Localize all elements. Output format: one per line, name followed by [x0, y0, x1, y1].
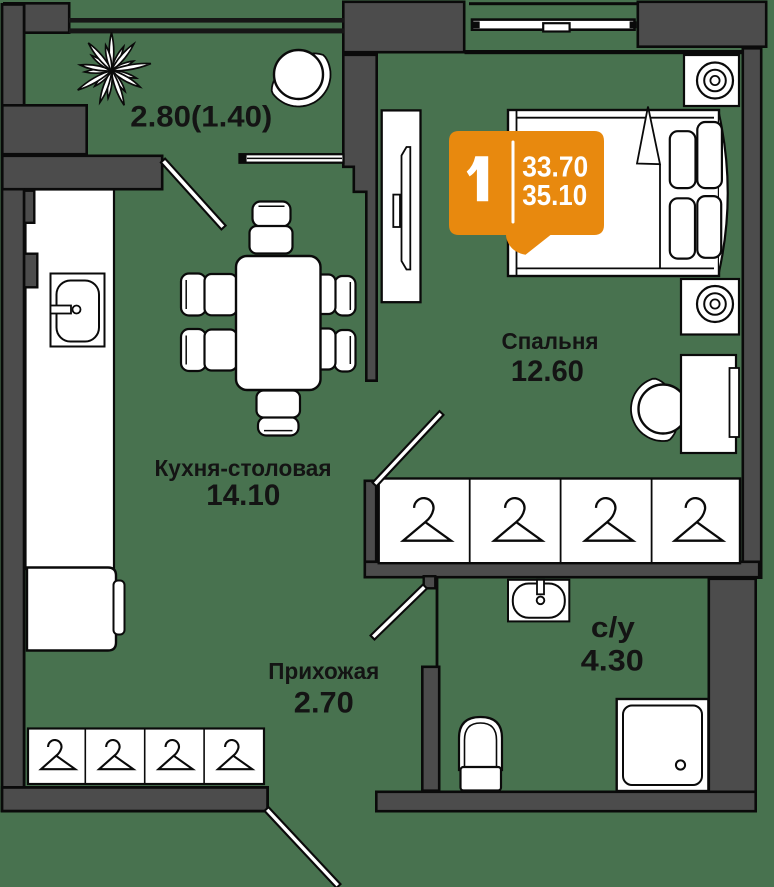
svg-text:Кухня-столовая: Кухня-столовая [155, 455, 332, 481]
svg-text:14.10: 14.10 [206, 479, 280, 512]
svg-text:Прихожая: Прихожая [268, 658, 379, 684]
svg-text:12.60: 12.60 [511, 355, 584, 388]
svg-text:2.80(1.40): 2.80(1.40) [130, 101, 272, 134]
svg-text:33.70: 33.70 [522, 152, 588, 184]
svg-text:с/у: с/у [591, 612, 635, 644]
svg-text:2.70: 2.70 [294, 687, 354, 720]
svg-text:Спальня: Спальня [502, 328, 599, 354]
svg-text:35.10: 35.10 [522, 180, 587, 212]
svg-text:4.30: 4.30 [581, 644, 644, 677]
